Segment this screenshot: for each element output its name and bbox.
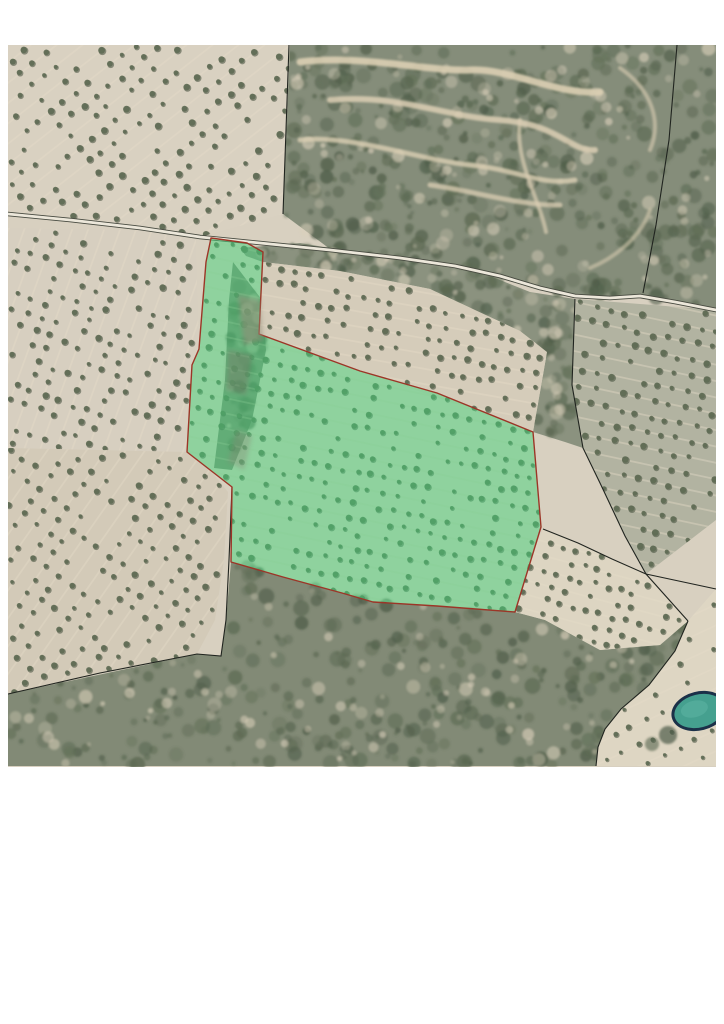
map-canvas <box>8 45 716 767</box>
aerial-photo <box>8 45 716 767</box>
document-page <box>0 0 724 1024</box>
